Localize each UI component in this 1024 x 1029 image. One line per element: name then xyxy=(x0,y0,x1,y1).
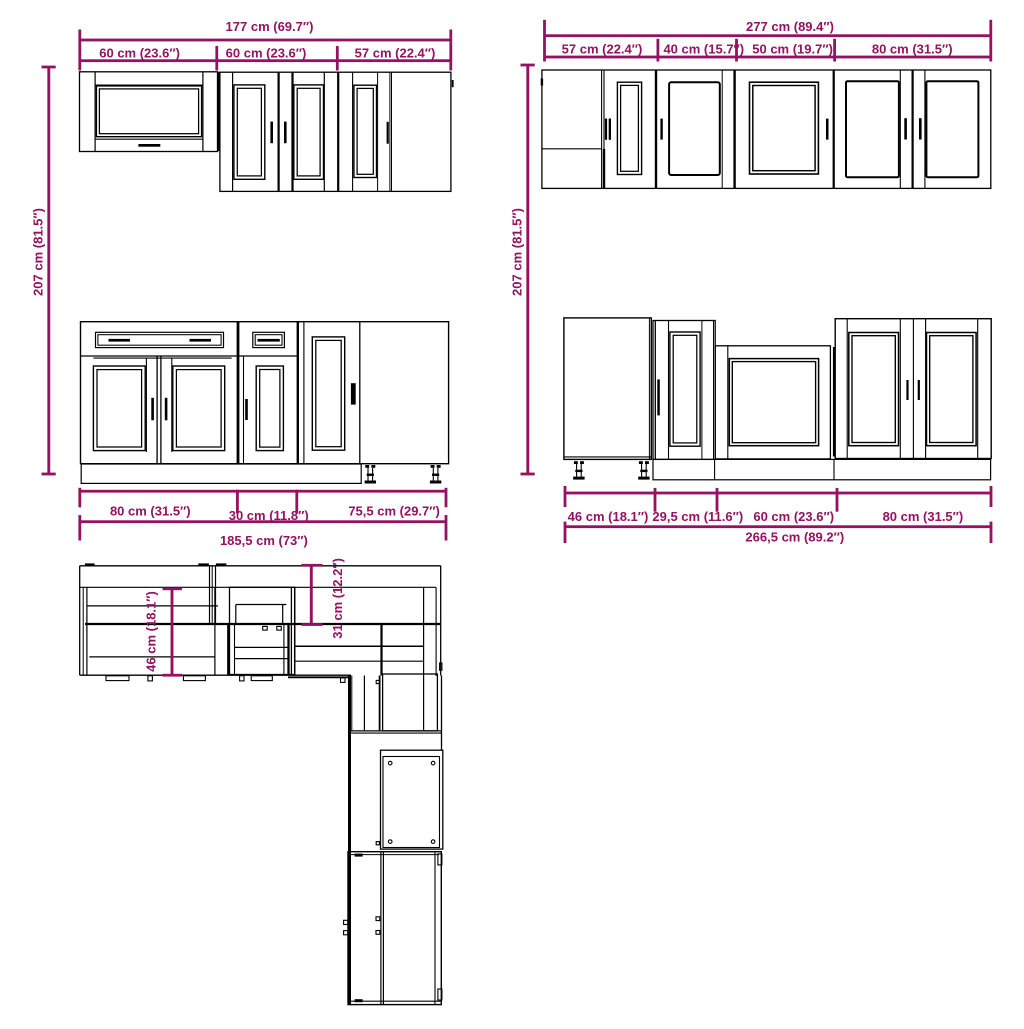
svg-text:60 cm (23.6″): 60 cm (23.6″) xyxy=(99,46,180,61)
svg-text:207 cm (81.5″): 207 cm (81.5″) xyxy=(509,208,524,296)
svg-text:60 cm (23.6″): 60 cm (23.6″) xyxy=(226,46,307,61)
svg-text:29,5 cm (11.6″): 29,5 cm (11.6″) xyxy=(652,509,743,524)
svg-text:80 cm (31.5″): 80 cm (31.5″) xyxy=(110,504,191,519)
svg-text:60 cm (23.6″): 60 cm (23.6″) xyxy=(753,509,834,524)
svg-text:40 cm (15.7″): 40 cm (15.7″) xyxy=(663,42,744,57)
svg-text:57 cm (22.4″): 57 cm (22.4″) xyxy=(355,46,436,61)
svg-text:80 cm (31.5″): 80 cm (31.5″) xyxy=(883,509,964,524)
svg-text:266,5 cm (89.2″): 266,5 cm (89.2″) xyxy=(745,530,844,545)
svg-text:277 cm (89.4″): 277 cm (89.4″) xyxy=(746,19,834,34)
svg-text:75,5 cm (29.7″): 75,5 cm (29.7″) xyxy=(348,504,440,519)
svg-text:80 cm (31.5″): 80 cm (31.5″) xyxy=(872,42,953,57)
svg-text:46 cm (18.1″): 46 cm (18.1″) xyxy=(144,591,159,672)
svg-text:57 cm (22.4″): 57 cm (22.4″) xyxy=(562,42,643,57)
svg-text:185,5 cm (73″): 185,5 cm (73″) xyxy=(220,533,308,548)
svg-text:207 cm (81.5″): 207 cm (81.5″) xyxy=(30,208,45,296)
svg-text:50 cm (19.7″): 50 cm (19.7″) xyxy=(752,42,833,57)
svg-text:31 cm (12.2″): 31 cm (12.2″) xyxy=(330,558,345,639)
svg-text:46 cm (18.1″): 46 cm (18.1″) xyxy=(568,509,649,524)
svg-text:177 cm (69.7″): 177 cm (69.7″) xyxy=(226,19,314,34)
